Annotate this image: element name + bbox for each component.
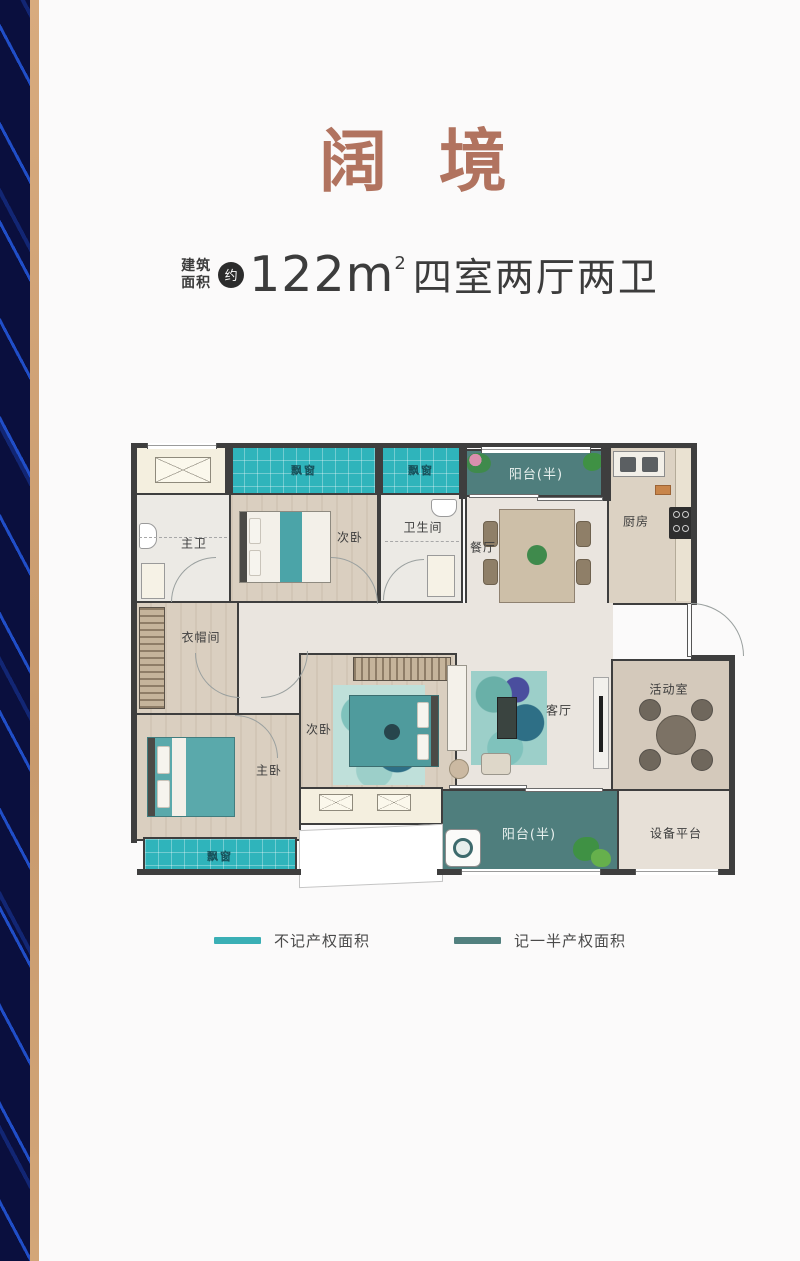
toilet-icon	[139, 523, 157, 549]
round-table-icon	[656, 715, 696, 755]
navy-diagonal-stripe	[0, 0, 30, 1261]
bed-throw	[172, 738, 186, 816]
cutting-board-icon	[655, 485, 671, 495]
plant-icon	[467, 453, 491, 473]
legend-label: 不记产权面积	[274, 930, 370, 951]
pillow-icon	[157, 780, 170, 808]
window	[635, 869, 719, 875]
wall-mullion	[459, 443, 467, 499]
legend-label: 记一半产权面积	[514, 930, 626, 951]
pillow-icon	[249, 550, 261, 576]
room-label-cloakroom: 衣帽间	[181, 629, 220, 646]
area-label-top: 建筑	[181, 258, 211, 274]
pillow-icon	[417, 734, 429, 760]
balcony-bottom-label: 阳台(半)	[502, 824, 556, 843]
burner	[673, 525, 680, 532]
stool-icon	[691, 699, 713, 721]
area-label-bottom: 面积	[181, 275, 211, 291]
wall-segment	[729, 657, 735, 875]
burner	[682, 525, 689, 532]
chair-icon	[576, 559, 591, 585]
legend-swatch-dark-teal	[454, 937, 501, 944]
armchair-icon	[481, 753, 511, 775]
headboard	[240, 512, 247, 582]
plant-icon	[591, 849, 611, 867]
window	[147, 443, 217, 449]
room-label-activity: 活动室	[649, 681, 688, 698]
bay-window-1: 飘窗	[229, 445, 379, 495]
sliding-door	[449, 785, 527, 789]
washer-drum	[453, 838, 473, 858]
wet-divider	[385, 541, 459, 542]
stool-icon	[639, 749, 661, 771]
legend-swatch-teal	[214, 937, 261, 944]
wall-mullion	[601, 443, 611, 501]
bed-cushion	[384, 724, 400, 740]
room-label-equipment: 设备平台	[650, 825, 702, 842]
toilet-icon	[431, 499, 457, 517]
area-value: 122m2	[249, 246, 407, 303]
approx-badge: 约	[218, 262, 244, 288]
sink-basin	[642, 457, 658, 472]
room-label-living: 客厅	[546, 702, 572, 719]
wall-mullion	[375, 443, 383, 495]
stool-icon	[639, 699, 661, 721]
area-label: 建筑 面积	[181, 258, 211, 290]
floor-plan: 飘窗 飘窗 飘窗	[131, 437, 743, 893]
storage-xbox-icon	[155, 457, 211, 483]
pillow-icon	[249, 518, 261, 544]
room-label-master-bedroom: 主卧	[256, 762, 282, 779]
bay-window-2: 飘窗	[379, 445, 463, 495]
sliding-door	[537, 497, 603, 501]
pillow-icon	[417, 702, 429, 728]
room-label-bedroom-mid: 次卧	[306, 721, 332, 738]
centerpiece-icon	[527, 545, 547, 565]
burner	[673, 511, 680, 518]
bay-window-1-label: 飘窗	[291, 462, 317, 478]
tan-stripe	[30, 0, 39, 1261]
room-label-master-bath: 主卫	[181, 535, 207, 552]
sofa-icon	[447, 665, 467, 751]
tv-console-icon	[593, 677, 609, 769]
bed-runner	[280, 512, 302, 582]
wardrobe-icon	[139, 607, 165, 709]
headboard	[431, 696, 438, 766]
chair-icon	[576, 521, 591, 547]
vanity-icon	[141, 563, 165, 599]
room-label-bedroom-top: 次卧	[337, 529, 363, 546]
headboard	[148, 738, 155, 816]
balcony-top-label: 阳台(半)	[509, 464, 563, 483]
entry-door-arc	[691, 603, 744, 656]
page-title: 阔 境	[40, 106, 800, 205]
room-label-dining: 餐厅	[470, 539, 496, 556]
legend-item-non-property: 不记产权面积	[214, 930, 370, 951]
window	[481, 447, 591, 453]
spec-row: 建筑 面积 约 122m2 四室两厅两卫	[40, 246, 800, 303]
wardrobe-icon	[353, 657, 451, 681]
chair-icon	[483, 559, 498, 585]
window	[461, 869, 601, 875]
sink-icon	[613, 451, 665, 477]
ledge-xbox-icon	[377, 794, 411, 811]
square-sup: 2	[394, 253, 406, 274]
side-table-icon	[449, 759, 469, 779]
sliding-door	[525, 788, 603, 792]
coffee-table-icon	[497, 697, 517, 739]
wall-segment	[691, 443, 697, 605]
stool-icon	[691, 749, 713, 771]
bay-window-3-label: 飘窗	[207, 848, 233, 864]
washing-machine-icon	[445, 829, 481, 867]
tv-icon	[599, 696, 603, 752]
bay-window-2-label: 飘窗	[408, 462, 434, 478]
bed-icon	[147, 737, 235, 817]
room-label-bathroom: 卫生间	[403, 519, 442, 536]
legend: 不记产权面积 记一半产权面积	[40, 930, 800, 951]
sliding-door	[469, 494, 539, 498]
stove-icon	[669, 507, 693, 539]
layout-text: 四室两厅两卫	[413, 247, 659, 303]
shower-icon	[427, 555, 455, 597]
wall-segment	[131, 443, 137, 843]
bed-icon	[349, 695, 439, 767]
sink-basin	[620, 457, 636, 472]
ledge-xbox-icon	[319, 794, 353, 811]
pillow-icon	[157, 746, 170, 774]
burner	[682, 511, 689, 518]
open-platform	[299, 824, 443, 888]
legend-item-half-property: 记一半产权面积	[454, 930, 626, 951]
wall-mullion	[225, 443, 233, 495]
wall-segment	[137, 869, 301, 875]
bed-icon	[239, 511, 331, 583]
room-label-kitchen: 厨房	[623, 513, 649, 530]
